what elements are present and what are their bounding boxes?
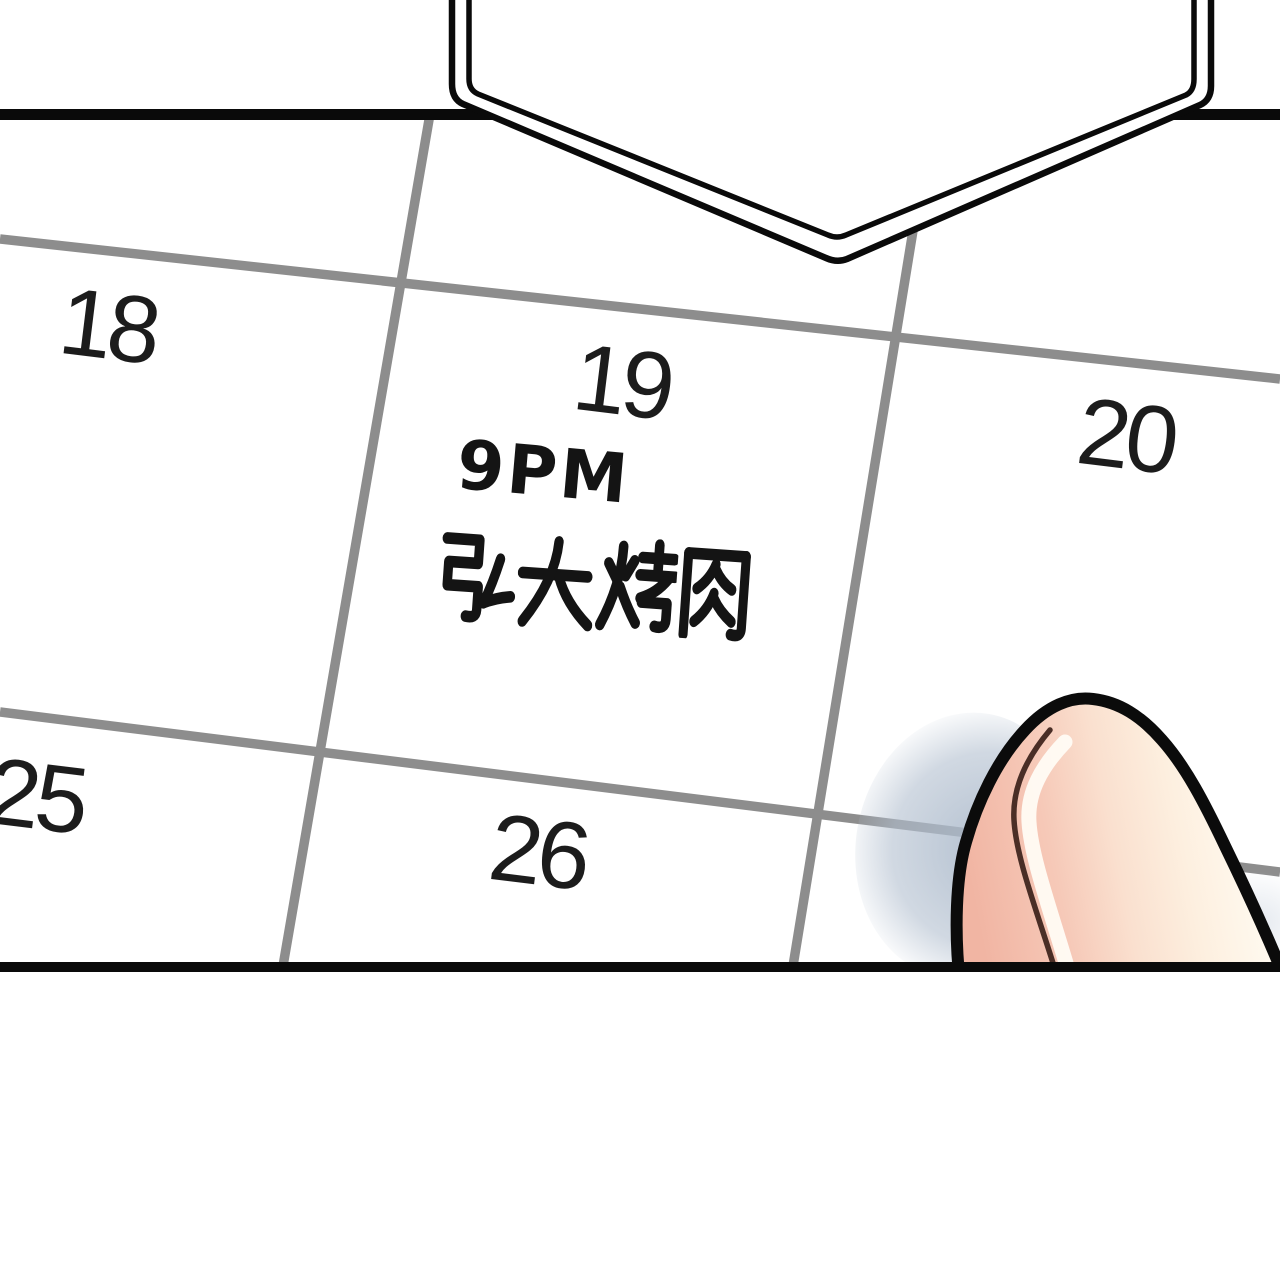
finger-shadow (834, 695, 1097, 997)
hanzi-hong-glyph (435, 524, 520, 626)
grid-column-line-left (283, 114, 430, 966)
calendar-date-25: 25 (0, 744, 89, 850)
calendar-date-18: 18 (54, 274, 161, 380)
bubble-outer-outline (452, 0, 1211, 261)
hanzi-kao-glyph (593, 535, 680, 637)
comic-panel-calendar: 18 19 20 25 26 9PM 弘大烤肉 (0, 0, 1280, 1280)
handwritten-event-time: 9PM (454, 432, 633, 515)
panel-border-bottom (0, 962, 1280, 972)
hanzi-da-glyph (514, 530, 599, 632)
handwritten-event-place: 弘大烤肉 (435, 524, 757, 644)
grid-row-line-bottom (0, 712, 1280, 872)
hanzi-rou-glyph (674, 541, 757, 643)
panel-border-top (0, 109, 1280, 120)
finger-shadow-right (1196, 872, 1280, 972)
calendar-date-26: 26 (484, 800, 591, 906)
calendar-date-20: 20 (1072, 384, 1179, 490)
calendar-date-19: 19 (568, 330, 675, 436)
page-margin-bottom (0, 972, 1280, 1280)
